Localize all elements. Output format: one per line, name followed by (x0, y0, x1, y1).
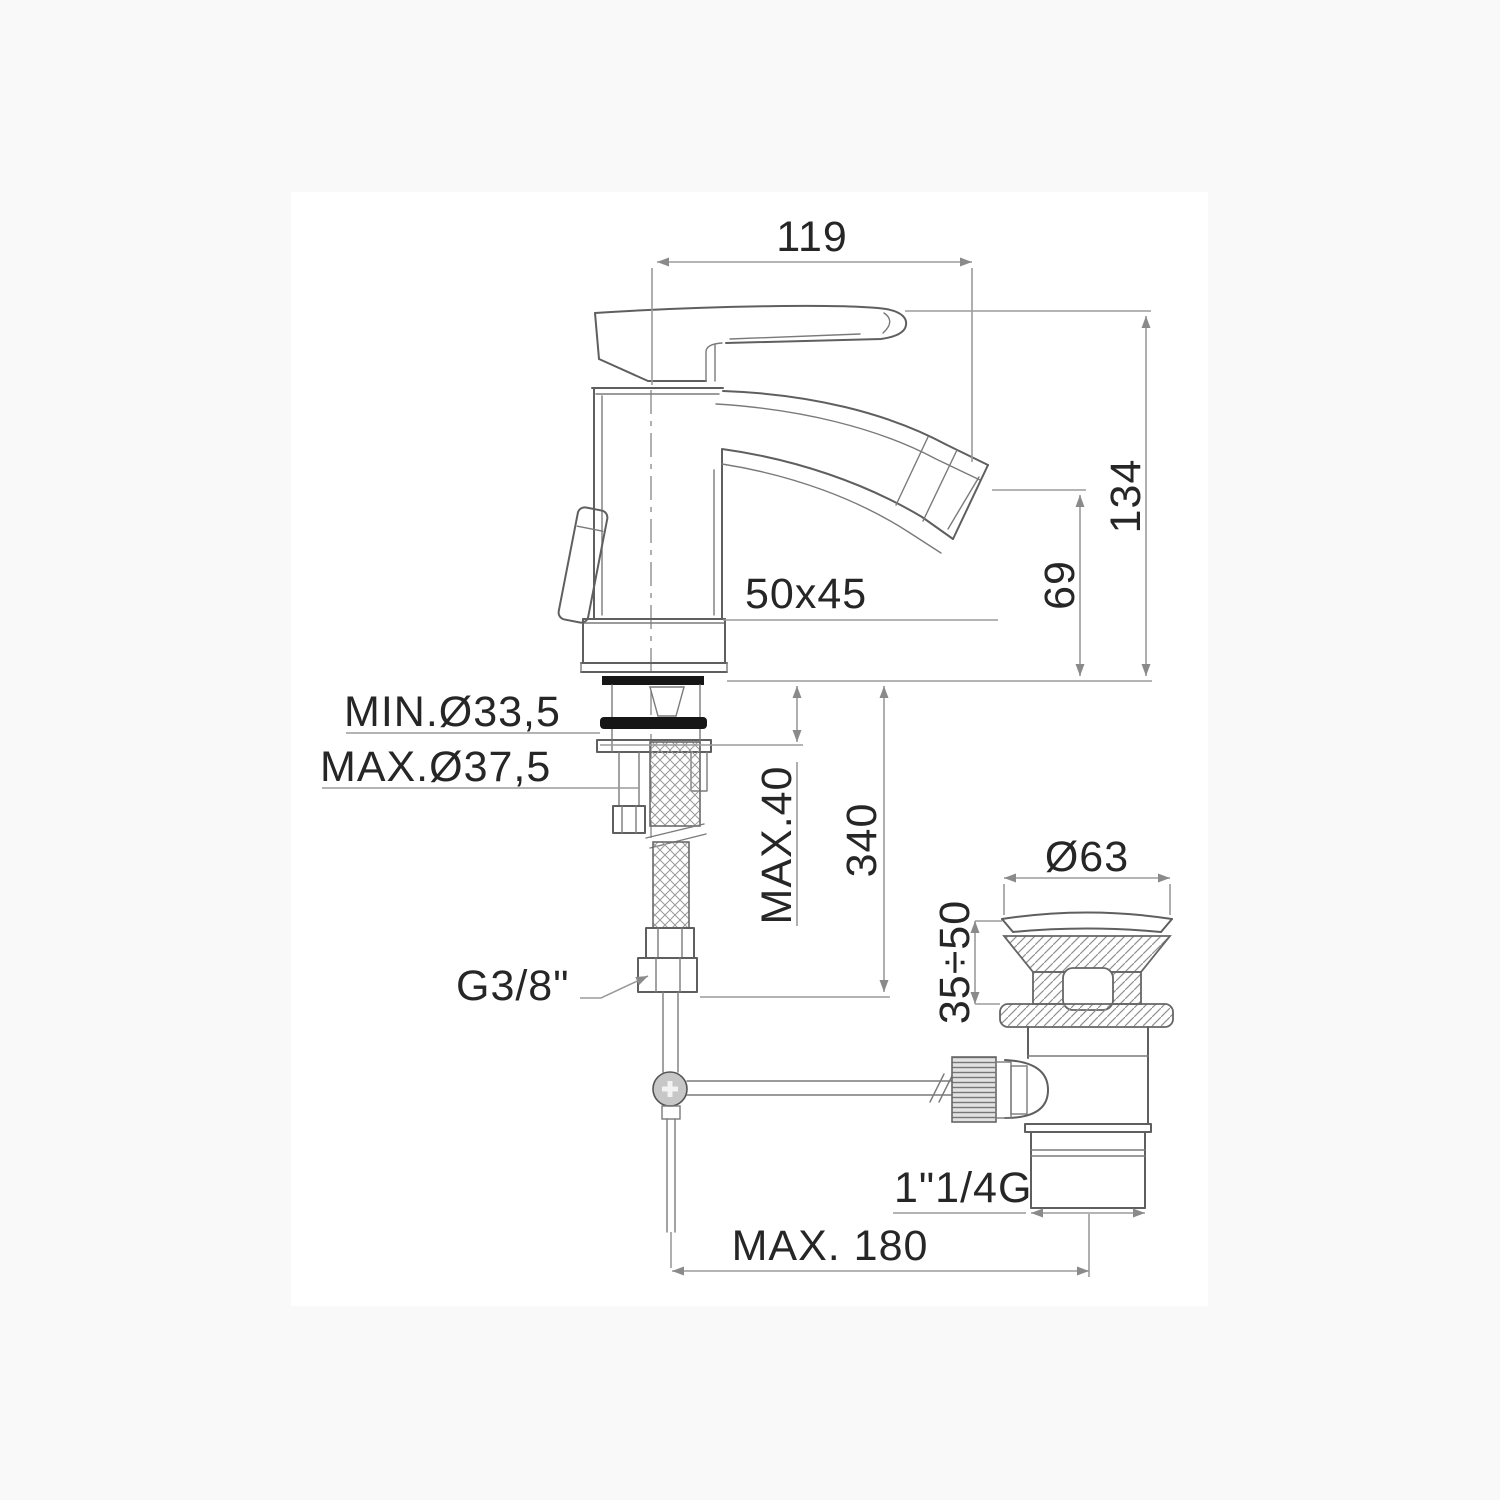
dim-waste-thread: 1"1/4G (894, 1164, 1032, 1212)
dim-hole-max: MAX.Ø37,5 (320, 743, 551, 791)
base-gasket (602, 676, 704, 685)
dim-deck-thickness: MAX.40 (753, 766, 801, 925)
dim-spout-height: 69 (1036, 560, 1084, 610)
waste-bottom-flange (1000, 1004, 1173, 1027)
dim-waste-deck-range: 35÷50 (931, 900, 979, 1024)
technical-drawing-page: 119 134 69 50x45 MIN.Ø33,5 MAX.Ø37,5 MAX… (0, 0, 1500, 1500)
knurled-nut (952, 1057, 996, 1122)
dim-hole-min: MIN.Ø33,5 (344, 688, 561, 736)
dim-spout-reach: 119 (776, 213, 848, 261)
dim-body-section: 50x45 (745, 570, 867, 618)
dim-supply-thread: G3/8" (456, 962, 570, 1010)
dim-total-height: 134 (1102, 459, 1150, 534)
waste-top-flange (1004, 936, 1170, 972)
dim-hose-length: 340 (838, 803, 886, 878)
dim-waste-flange-diameter: Ø63 (1045, 833, 1129, 881)
o-ring (600, 717, 707, 729)
dim-rod-reach: MAX. 180 (732, 1222, 929, 1270)
bidet-mixer-dimension-drawing: 119 134 69 50x45 MIN.Ø33,5 MAX.Ø37,5 MAX… (0, 0, 1500, 1500)
